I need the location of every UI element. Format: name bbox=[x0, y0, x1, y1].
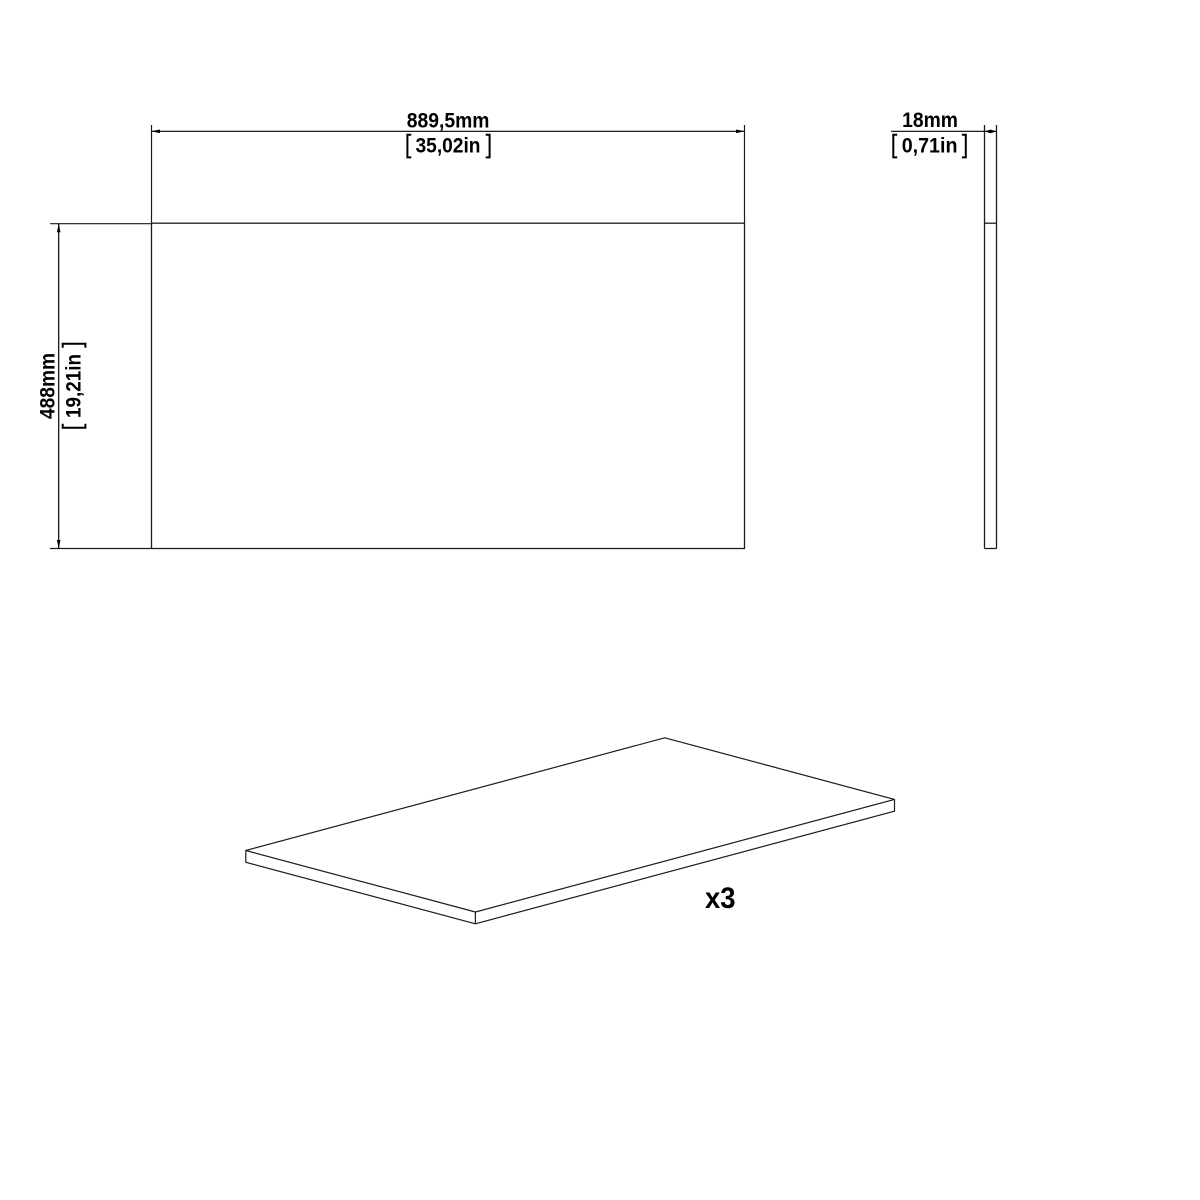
svg-text:18mm: 18mm bbox=[902, 109, 958, 132]
svg-text:35,02in: 35,02in bbox=[416, 135, 481, 158]
svg-text:889,5mm: 889,5mm bbox=[407, 110, 490, 133]
svg-text:x3: x3 bbox=[705, 882, 736, 915]
svg-text:0,71in: 0,71in bbox=[902, 135, 958, 158]
svg-text:19,21in: 19,21in bbox=[63, 354, 86, 418]
svg-text:488mm: 488mm bbox=[36, 353, 59, 419]
